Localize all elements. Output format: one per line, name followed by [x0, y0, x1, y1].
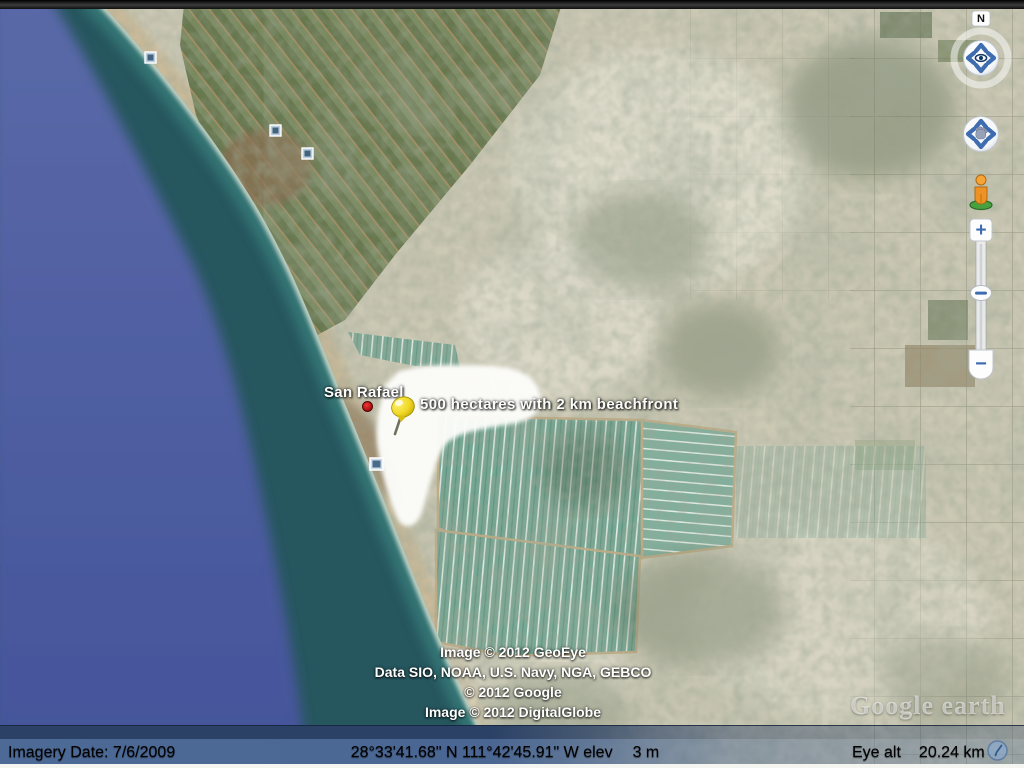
photo-placemark-icon[interactable]: [370, 458, 383, 470]
zoom-thumb[interactable]: [971, 286, 992, 301]
svg-text:+: +: [975, 220, 986, 241]
letterbox-top-strip: [0, 0, 1024, 9]
attribution-line: Image © 2012 DigitalGlobe: [323, 702, 703, 722]
eye-altitude-group: Eye alt 20.24 km: [852, 744, 985, 762]
north-indicator[interactable]: N: [977, 13, 985, 25]
elevation-readout: 3 m: [633, 744, 660, 762]
zoom-slider: + −: [969, 219, 993, 379]
eye-altitude-value: 20.24 km: [919, 744, 985, 762]
letterbox-bottom-strip: [0, 764, 1024, 768]
coordinates-readout: 28°33'41.68" N 111°42'45.91" W elev: [351, 744, 613, 762]
attribution-line: Image © 2012 GeoEye: [323, 642, 703, 662]
status-bar-upper-band: [0, 725, 1024, 739]
photo-placemark-icon[interactable]: [145, 52, 156, 63]
move-control[interactable]: [964, 117, 999, 152]
navigation-controls: N: [940, 8, 1024, 388]
google-earth-window: San Rafael 500 hectares with 2 km beachf…: [0, 0, 1024, 768]
photo-placemark-icon[interactable]: [270, 125, 281, 136]
look-control[interactable]: N: [954, 11, 1008, 85]
imagery-date-label: Imagery Date: 7/6/2009: [8, 744, 175, 762]
attribution-line: © 2012 Google: [323, 682, 703, 702]
pegman-icon: [975, 175, 987, 204]
zoom-out-button[interactable]: −: [969, 350, 993, 379]
photo-placemark-icon[interactable]: [302, 148, 313, 159]
place-dot-icon[interactable]: [362, 401, 373, 412]
attribution-line: Data SIO, NOAA, U.S. Navy, NGA, GEBCO: [323, 662, 703, 682]
svg-text:−: −: [975, 353, 987, 375]
coordinates-readout-group: 28°33'41.68" N 111°42'45.91" W elev 3 m: [340, 744, 670, 762]
streaming-spinner-icon: [987, 740, 1008, 761]
property-label[interactable]: 500 hectares with 2 km beachfront: [420, 396, 678, 413]
pushpin-icon[interactable]: [382, 393, 422, 441]
map-attribution: Image © 2012 GeoEye Data SIO, NOAA, U.S.…: [323, 642, 703, 722]
google-earth-watermark: Google earth: [850, 691, 1006, 721]
pegman-control[interactable]: [970, 175, 992, 210]
zoom-in-button[interactable]: +: [970, 219, 992, 241]
eye-altitude-label: Eye alt: [852, 744, 901, 762]
